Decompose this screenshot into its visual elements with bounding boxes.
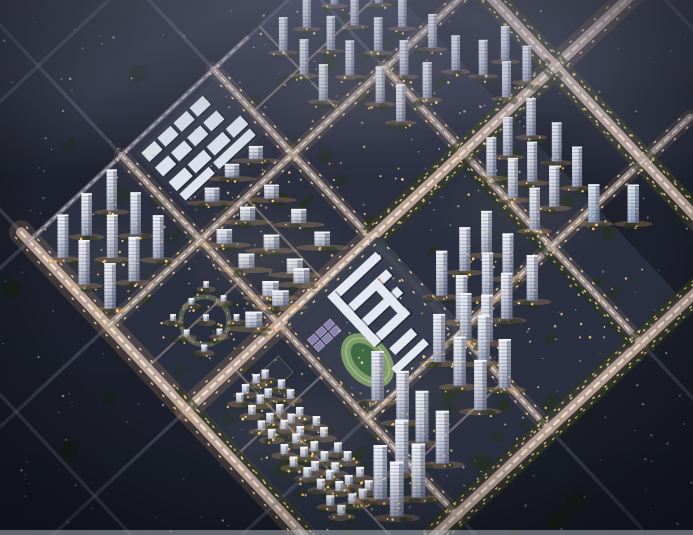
- atmosphere-layer: [0, 0, 693, 535]
- vignette: [0, 0, 693, 535]
- scene-svg: [0, 0, 693, 535]
- aerial-city-render: [0, 0, 693, 535]
- bottom-edge-strip: [0, 530, 693, 535]
